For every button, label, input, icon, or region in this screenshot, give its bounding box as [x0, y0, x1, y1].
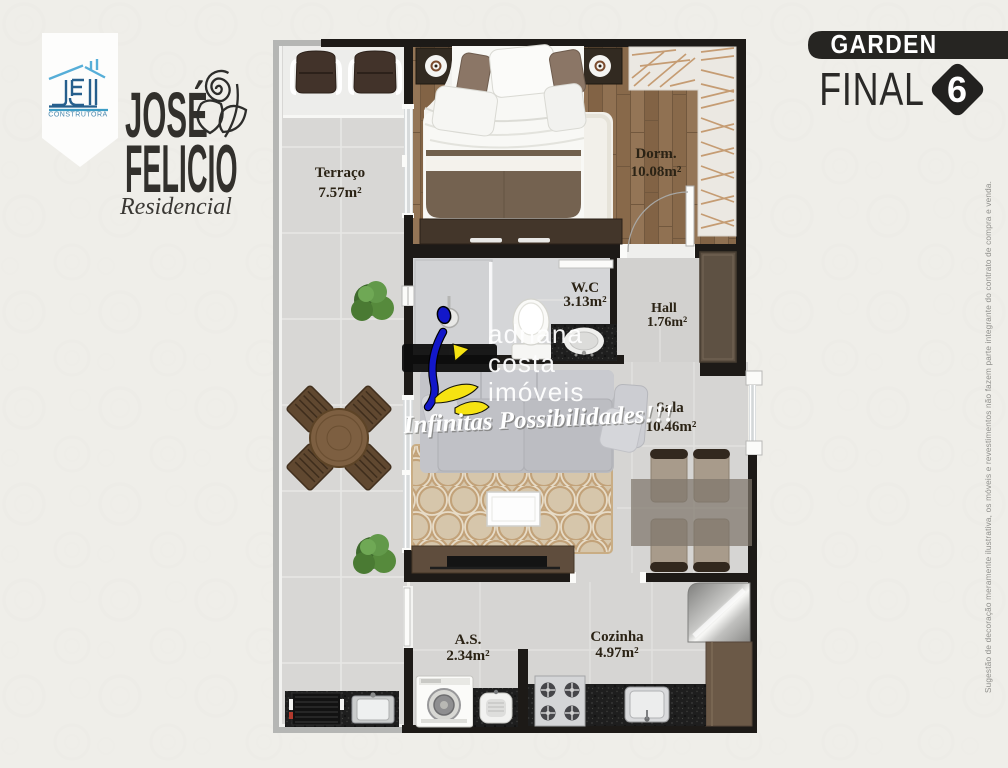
svg-text:4.97m²: 4.97m² — [595, 645, 639, 661]
svg-text:GARDEN: GARDEN — [831, 31, 938, 60]
svg-text:7.57m²: 7.57m² — [318, 185, 362, 201]
svg-text:Dorm.: Dorm. — [635, 146, 676, 162]
svg-text:Hall: Hall — [651, 301, 677, 316]
svg-text:FINAL: FINAL — [819, 64, 925, 115]
svg-text:1.76m²: 1.76m² — [647, 315, 687, 330]
svg-text:6: 6 — [947, 69, 967, 110]
svg-text:2.34m²: 2.34m² — [446, 648, 490, 664]
svg-text:Residencial: Residencial — [119, 194, 232, 220]
svg-text:10.08m²: 10.08m² — [631, 164, 682, 180]
svg-text:imóveis: imóveis — [488, 377, 585, 407]
svg-text:costa: costa — [488, 348, 556, 378]
svg-text:Sugestão de decoração merament: Sugestão de decoração meramente ilustrat… — [984, 181, 993, 693]
svg-text:Cozinha: Cozinha — [590, 629, 644, 645]
svg-text:Terraço: Terraço — [315, 165, 365, 181]
svg-text:3.13m²: 3.13m² — [563, 294, 607, 310]
svg-text:adriana: adriana — [488, 319, 583, 349]
svg-text:A.S.: A.S. — [455, 632, 482, 648]
svg-text:CONSTRUTORA: CONSTRUTORA — [48, 112, 107, 119]
